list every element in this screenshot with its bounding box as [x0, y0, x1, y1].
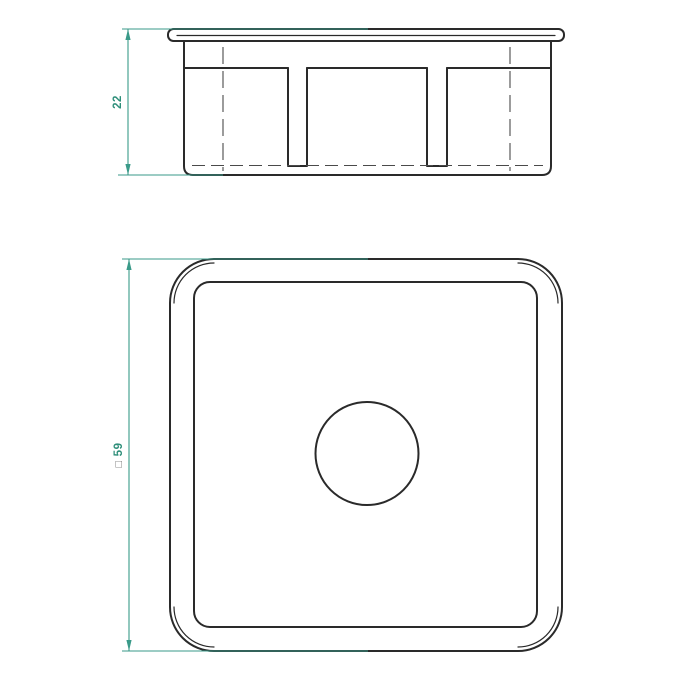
corner-edge-arcs	[174, 263, 558, 647]
snap-slot-left	[288, 68, 307, 166]
side-dimension: 22	[112, 29, 368, 175]
plan-view: □59	[113, 259, 562, 651]
arrow-down-icon	[126, 640, 131, 651]
arrow-up-icon	[125, 29, 130, 40]
square-symbol: □	[113, 460, 125, 467]
cover-outer-outline	[170, 259, 562, 651]
drawing-page: 22	[0, 0, 700, 700]
side-view: 22	[112, 29, 564, 175]
body-outline	[184, 41, 551, 175]
side-dimension-label: 22	[112, 95, 124, 109]
center-knockout-circle	[316, 402, 419, 505]
arrow-down-icon	[125, 164, 130, 175]
technical-drawing-canvas: 22	[0, 0, 700, 700]
arrow-up-icon	[126, 259, 131, 270]
plan-dimension: □59	[113, 259, 368, 651]
plan-dimension-label: □59	[113, 443, 125, 468]
plan-dimension-value: 59	[113, 443, 125, 457]
cover-inner-outline	[194, 282, 537, 627]
snap-slot-right	[427, 68, 447, 166]
